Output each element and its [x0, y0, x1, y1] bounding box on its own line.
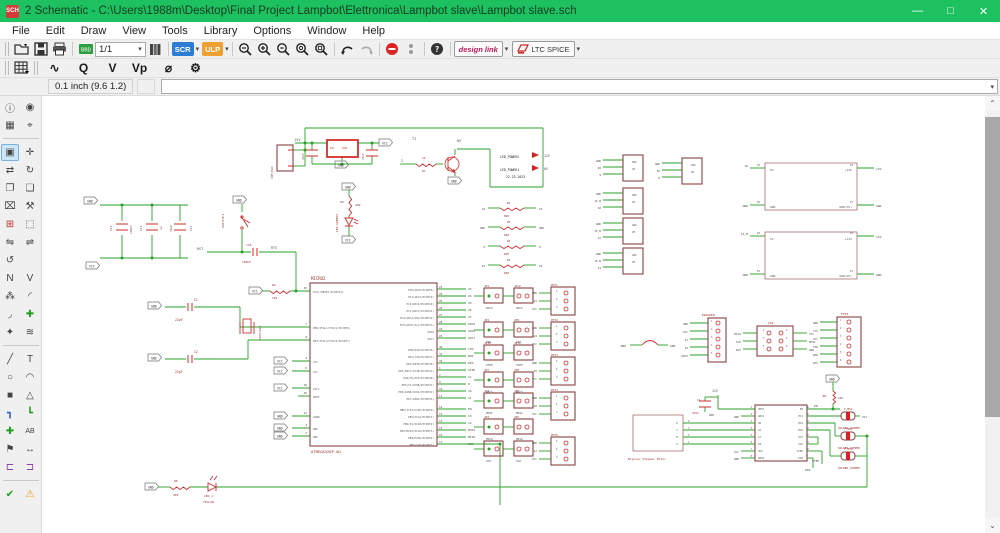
left-tool-palette: ⓘ◉▦⌖▣✛⇄↻❐❏⌧⚒⊞⬚⇋⇌↺NV⁂◜◞✚✦≋╱T○◠■△┓┗✚AB⚑↔⊏⊐… — [0, 96, 42, 533]
svg-text:1A: 1A — [758, 435, 762, 439]
svg-text:GND: GND — [480, 226, 485, 230]
menu-file[interactable]: File — [4, 25, 38, 37]
svg-text:GND: GND — [632, 223, 637, 227]
svg-text:VCC: VCC — [734, 450, 739, 454]
chevron-down-icon[interactable]: ▾ — [505, 45, 509, 53]
svg-text:R2: R2 — [272, 283, 276, 287]
svg-text:VCC: VCC — [89, 264, 95, 268]
board-button[interactable]: BRD — [76, 41, 95, 58]
main-toolbar: BRD 1/1 ▾ SCR ▾ ULP ▾ — [0, 40, 1000, 59]
paste-icon[interactable]: ❏ — [21, 180, 39, 197]
svg-text:6: 6 — [786, 345, 788, 348]
spice-settings-icon[interactable]: ⚙ — [186, 60, 205, 77]
svg-text:SCK: SCK — [486, 459, 491, 463]
svg-text:0V: 0V — [544, 167, 548, 171]
title-bar: SCH 2 Schematic - C:\Users\1988m\Desktop… — [0, 0, 1000, 22]
svg-text:R5: R5 — [340, 200, 344, 204]
svg-text:PB2(SS/OC1B/PCINT2): PB2(SS/OC1B/PCINT2) — [403, 422, 434, 426]
zoom-out-icon[interactable] — [274, 41, 293, 58]
svg-text:12V: 12V — [294, 138, 301, 142]
svg-text:GND: GND — [596, 252, 601, 256]
svg-text:GND1: GND1 — [758, 414, 765, 418]
info-icon[interactable]: ⓘ — [1, 99, 19, 116]
svg-text:MS3: MS3 — [798, 428, 803, 432]
svg-text:VDD: VDD — [758, 449, 763, 453]
ltspice-button[interactable]: LTC SPICE — [512, 41, 574, 57]
svg-text:PB0(ICP1/CLKO/PCINT0): PB0(ICP1/CLKO/PCINT0) — [400, 408, 434, 412]
svg-text:ADC5: ADC5 — [486, 390, 493, 394]
dimension-icon[interactable]: ↔ — [21, 441, 39, 458]
svg-text:8: 8 — [305, 335, 307, 339]
svg-text:20: 20 — [657, 169, 661, 173]
svg-text:TXD: TXD — [468, 347, 474, 351]
svg-text:1B: 1B — [758, 442, 762, 446]
value-icon[interactable]: V — [21, 270, 39, 287]
zoom-redraw-icon[interactable] — [293, 41, 312, 58]
smash-icon[interactable]: ⁂ — [1, 288, 19, 305]
svg-text:PD0(RXD/PCINT16): PD0(RXD/PCINT16) — [408, 348, 434, 352]
svg-text:1: 1 — [711, 320, 713, 323]
svg-text:10: 10 — [439, 387, 443, 391]
label-icon[interactable]: AB — [21, 423, 39, 440]
svg-text:4: 4 — [305, 356, 307, 360]
rect-icon[interactable]: ■ — [1, 387, 19, 404]
svg-text:14: 14 — [598, 266, 602, 270]
svg-text:ADC7: ADC7 — [468, 336, 475, 340]
command-input-wrap: ▾ — [161, 79, 998, 94]
svg-text:RTS: RTS — [271, 246, 277, 250]
save-button[interactable] — [31, 41, 50, 58]
svg-text:PB6(XTAL1/TOSC1/PCINT6): PB6(XTAL1/TOSC1/PCINT6) — [313, 326, 351, 330]
svg-text:VCC: VCC — [532, 342, 537, 346]
toolbar-grip — [5, 42, 9, 56]
svg-text:3: 3 — [556, 376, 558, 379]
chevron-down-icon: ▾ — [138, 45, 142, 53]
svg-text:SCK: SCK — [468, 442, 474, 446]
svg-text:GND: GND — [277, 426, 283, 430]
eye-icon[interactable]: ◉ — [21, 99, 39, 116]
svg-text:1: 1 — [840, 319, 842, 322]
chevron-down-icon[interactable]: ▾ — [990, 83, 994, 91]
svg-text:MISO: MISO — [486, 437, 493, 441]
svg-text:GND: GND — [151, 304, 157, 308]
errors-icon[interactable]: ⚠ — [21, 486, 39, 503]
svg-text:5: 5 — [305, 431, 307, 435]
svg-text:9: 9 — [599, 173, 601, 177]
svg-text:MISO: MISO — [734, 332, 741, 336]
svg-text:4: 4 — [840, 343, 842, 346]
scrollbar-track[interactable] — [985, 111, 1000, 518]
svg-text:GND(0V): GND(0V) — [839, 205, 852, 209]
svg-text:3: 3 — [763, 337, 765, 340]
app-icon: SCH — [6, 5, 19, 18]
svg-text:LED_1: LED_1 — [204, 494, 213, 498]
svg-text:25: 25 — [468, 301, 472, 305]
open-button[interactable] — [12, 41, 31, 58]
svg-text:VCC: VCC — [277, 386, 283, 390]
svg-text:GND: GND — [709, 413, 714, 417]
svg-text:100nF: 100nF — [242, 260, 251, 264]
svg-text:3: 3 — [305, 423, 307, 427]
vertical-scrollbar[interactable]: ⌃ ⌄ — [985, 96, 1000, 533]
svg-text:C34: C34 — [246, 243, 252, 247]
toolbar-grip — [5, 61, 9, 75]
svg-text:4: 4 — [711, 344, 713, 347]
menu-edit[interactable]: Edit — [38, 25, 73, 37]
svg-text:100nF: 100nF — [129, 225, 133, 234]
route-icon[interactable]: ✚ — [21, 306, 39, 323]
bus-icon[interactable]: ┓ — [1, 405, 19, 422]
svg-text:PC1(ADC1/PCINT9): PC1(ADC1/PCINT9) — [408, 295, 434, 299]
port-icon[interactable]: ⊏ — [1, 459, 19, 476]
menu-draw[interactable]: Draw — [73, 25, 115, 37]
svg-text:24: 24 — [468, 294, 472, 298]
svg-text:2: 2 — [556, 368, 558, 371]
svg-text:CTS: CTS — [813, 329, 818, 333]
svg-text:GND: GND — [532, 361, 537, 365]
invoke-icon[interactable]: ✦ — [1, 324, 19, 341]
svg-text:PD2(INT0/PCINT18): PD2(INT0/PCINT18) — [406, 362, 434, 366]
svg-text:VCC: VCC — [313, 360, 318, 364]
svg-text:5: 5 — [840, 351, 842, 354]
svg-text:PB5(SCK/PCINT5): PB5(SCK/PCINT5) — [410, 443, 435, 447]
svg-text:GND: GND — [345, 185, 351, 189]
zoom-select-icon[interactable] — [312, 41, 331, 58]
svg-text:12: 12 — [439, 405, 443, 409]
svg-text:29: 29 — [304, 286, 308, 290]
port-frame-icon[interactable]: ⊐ — [21, 459, 39, 476]
svg-text:VB: VB — [691, 170, 695, 174]
library-button[interactable] — [146, 41, 165, 58]
svg-text:GND: GND — [277, 414, 283, 418]
pinswap-icon[interactable]: ⇋ — [1, 234, 19, 251]
menu-library[interactable]: Library — [196, 25, 246, 37]
svg-text:GND: GND — [743, 273, 749, 277]
svg-text:MICRO2: MICRO2 — [311, 276, 326, 281]
svg-text:JP7: JP7 — [484, 368, 489, 372]
svg-text:30: 30 — [439, 345, 443, 349]
svg-text:12V: 12V — [544, 154, 550, 158]
svg-text:27: 27 — [534, 449, 538, 453]
svg-text:JP9: JP9 — [514, 318, 519, 322]
svg-text:5V: 5V — [770, 237, 774, 241]
redo-button[interactable] — [357, 41, 376, 58]
svg-text:22: 22 — [439, 334, 443, 338]
group-select-icon[interactable]: ▣ — [1, 144, 19, 161]
svg-text:GND: GND — [532, 396, 537, 400]
stop-button[interactable] — [383, 41, 402, 58]
junction-icon[interactable]: ✚ — [1, 423, 19, 440]
run-ulp-button[interactable]: ULP — [202, 42, 223, 56]
svg-text:24: 24 — [534, 334, 538, 338]
svg-text:10: 10 — [482, 207, 486, 211]
svg-text:MISO: MISO — [468, 435, 475, 439]
svg-text:26: 26 — [439, 306, 443, 310]
svg-text:1: 1 — [556, 325, 558, 328]
svg-text:3: 3 — [556, 456, 558, 459]
simulate-icon[interactable]: ∿ — [45, 60, 64, 77]
run-script-button[interactable]: SCR — [172, 42, 194, 56]
run-status-icon — [402, 41, 421, 58]
svg-text:2A: 2A — [758, 428, 762, 432]
svg-text:OUT: OUT — [342, 146, 348, 150]
voltage-phase-probe-icon[interactable]: Vp — [130, 60, 149, 77]
current-probe-icon[interactable]: ⌀ — [159, 60, 178, 77]
svg-text:POT5: POT5 — [551, 433, 558, 437]
svg-text:1: 1 — [556, 395, 558, 398]
svg-text:2: 2 — [711, 328, 713, 331]
undo-button[interactable] — [338, 41, 357, 58]
svg-text:GND: GND — [734, 457, 739, 461]
svg-text:VCC: VCC — [345, 238, 351, 242]
svg-text:VMOT: VMOT — [758, 407, 765, 411]
svg-text:1: 1 — [439, 366, 441, 370]
gateswap-icon[interactable]: ↺ — [1, 252, 19, 269]
svg-text:GND2: GND2 — [758, 456, 765, 460]
svg-text:18: 18 — [304, 383, 308, 387]
svg-text:PB7(XTAL2/TOSC2/PCINT7): PB7(XTAL2/TOSC2/PCINT7) — [313, 339, 351, 343]
wire-icon[interactable]: ╱ — [1, 351, 19, 368]
svg-text:13: 13 — [439, 412, 443, 416]
attribute-icon[interactable]: ⚑ — [1, 441, 19, 458]
chevron-down-icon[interactable]: ▾ — [577, 45, 581, 53]
change-icon[interactable]: ⚒ — [21, 198, 39, 215]
svg-text:1: 1 — [556, 290, 558, 293]
svg-text:GND: GND — [691, 163, 696, 167]
copy-icon[interactable]: ❐ — [1, 180, 19, 197]
text-icon[interactable]: T — [21, 351, 39, 368]
svg-text:VB: VB — [632, 200, 636, 204]
add-part-icon[interactable]: ⊞ — [1, 216, 19, 233]
svg-text:COM_PAC: COM_PAC — [270, 166, 274, 179]
svg-text:27: 27 — [439, 313, 443, 317]
svg-text:C: C — [676, 428, 678, 432]
svg-text:DIR: DIR — [468, 361, 474, 365]
svg-text:GND: GND — [596, 222, 601, 226]
svg-text:VCC: VCC — [252, 289, 258, 293]
svg-text:R1: R1 — [507, 258, 511, 262]
chevron-down-icon[interactable]: ▾ — [225, 45, 229, 53]
svg-text:9: 9 — [468, 382, 470, 386]
sim-toolbar: ∿ Q V Vp ⌀ ⚙ — [0, 59, 1000, 78]
svg-text:Y_MS2: Y_MS2 — [844, 427, 853, 431]
miter-icon[interactable]: ◜ — [21, 288, 39, 305]
svg-text:1: 1 — [556, 440, 558, 443]
arc-icon[interactable]: ◠ — [21, 369, 39, 386]
svg-text:GND: GND — [632, 193, 637, 197]
name-icon[interactable]: N — [1, 270, 19, 287]
rotate-icon[interactable]: ↻ — [21, 162, 39, 179]
svg-text:C11: C11 — [189, 225, 193, 231]
svg-text:0V: 0V — [457, 139, 462, 143]
maximize-button[interactable]: □ — [934, 0, 967, 22]
svg-text:7: 7 — [305, 322, 307, 326]
optimize-icon[interactable]: ≋ — [21, 324, 39, 341]
zoom-fit-icon[interactable] — [236, 41, 255, 58]
svg-text:PD7(AIN1/PCINT23): PD7(AIN1/PCINT23) — [406, 397, 434, 401]
grid-button[interactable] — [12, 60, 31, 77]
svg-text:GND: GND — [770, 205, 776, 209]
polygon-icon[interactable]: △ — [21, 387, 39, 404]
svg-text:PC2(ADC2/PCINT10): PC2(ADC2/PCINT10) — [406, 302, 434, 306]
svg-text:12V: 12V — [712, 389, 718, 393]
svg-text:SLP: SLP — [798, 442, 803, 446]
svg-text:12V: 12V — [876, 235, 882, 239]
svg-text:VB: VB — [632, 230, 636, 234]
svg-text:MOSI: MOSI — [468, 428, 475, 432]
zoom-in-icon[interactable] — [255, 41, 274, 58]
svg-text:VCC: VCC — [277, 369, 283, 373]
design-link-button[interactable]: design link — [454, 41, 503, 57]
svg-text:RXD: RXD — [813, 353, 818, 357]
delete-icon[interactable]: ⌧ — [1, 198, 19, 215]
svg-text:VCC: VCC — [532, 307, 537, 311]
svg-text:C4: C4 — [697, 398, 701, 402]
svg-text:B: B — [676, 435, 678, 439]
scrollbar-thumb[interactable] — [985, 117, 1000, 417]
svg-text:ADC5: ADC5 — [468, 322, 475, 326]
svg-text:10: 10 — [468, 389, 472, 393]
mark-icon[interactable]: ⌖ — [21, 117, 39, 134]
menu-view[interactable]: View — [114, 25, 154, 37]
svg-text:POT4: POT4 — [551, 388, 558, 392]
svg-text:PB1(OC1A/PCINT1): PB1(OC1A/PCINT1) — [408, 415, 434, 419]
svg-text:AVCC: AVCC — [313, 387, 320, 391]
svg-text:6: 6 — [305, 366, 307, 370]
close-button[interactable]: ✕ — [967, 0, 1000, 22]
svg-text:SOLDER_JUMPER: SOLDER_JUMPER — [838, 466, 860, 470]
svg-text:C13: C13 — [109, 225, 113, 231]
svg-text:31: 31 — [439, 352, 443, 356]
scroll-down-icon[interactable]: ⌄ — [985, 518, 1000, 533]
svg-text:2: 2 — [556, 403, 558, 406]
svg-text:5V: 5V — [770, 168, 774, 172]
print-button[interactable] — [50, 41, 69, 58]
svg-text:POT2: POT2 — [551, 318, 558, 322]
mirror-icon[interactable]: ⇄ — [1, 162, 19, 179]
probe-zoom-icon[interactable]: Q — [74, 60, 93, 77]
svg-text:GND: GND — [655, 162, 660, 166]
svg-text:Bipolar Stepper Motor: Bipolar Stepper Motor — [628, 457, 666, 461]
svg-text:PB3(MOSI/OC2A/PCINT3): PB3(MOSI/OC2A/PCINT3) — [400, 429, 434, 433]
svg-text:9: 9 — [658, 176, 660, 180]
svg-text:LED_POWER2: LED_POWER2 — [500, 155, 519, 159]
svg-text:PC4(ADC4/SDA/PCINT12): PC4(ADC4/SDA/PCINT12) — [400, 316, 434, 320]
svg-text:GND: GND — [236, 198, 242, 202]
svg-text:P2: P2 — [850, 164, 853, 167]
group-icon[interactable]: ⬚ — [21, 216, 39, 233]
svg-text:LED_POWER1: LED_POWER1 — [500, 168, 519, 172]
svg-text:2: 2 — [840, 327, 842, 330]
svg-text:GND: GND — [876, 273, 882, 277]
svg-text:2: 2 — [556, 298, 558, 301]
svg-text:STEP: STEP — [486, 363, 493, 367]
split-icon[interactable]: ◞ — [1, 306, 19, 323]
svg-text:R3: R3 — [507, 220, 511, 224]
svg-text:14: 14 — [468, 421, 472, 425]
menu-window[interactable]: Window — [299, 25, 354, 37]
svg-text:4: 4 — [786, 337, 788, 340]
svg-text:P4: P4 — [757, 164, 760, 167]
svg-text:5: 5 — [711, 352, 713, 355]
svg-text:STEP: STEP — [812, 459, 819, 463]
help-button[interactable]: ? — [428, 41, 447, 58]
canvas-area[interactable]: 12VINOUTT11kR720VLED_POWER212VLED_POWER1… — [42, 96, 985, 533]
net-icon[interactable]: ┗ — [21, 405, 39, 422]
move-icon[interactable]: ✛ — [21, 144, 39, 161]
erc-icon[interactable]: ✔ — [1, 486, 19, 503]
menu-options[interactable]: Options — [245, 25, 299, 37]
svg-text:000: 000 — [504, 252, 509, 256]
svg-text:JP4: JP4 — [484, 415, 489, 419]
menu-help[interactable]: Help — [354, 25, 393, 37]
svg-text:VCC: VCC — [683, 330, 688, 334]
svg-text:PC6(/RESET/PCINT14): PC6(/RESET/PCINT14) — [313, 290, 344, 294]
coordinate-spacer — [137, 79, 155, 94]
chevron-down-icon[interactable]: ▾ — [196, 45, 200, 53]
display-layers-icon[interactable]: ▦ — [1, 117, 19, 134]
svg-text:GND: GND — [770, 274, 776, 278]
svg-text:20: 20 — [598, 166, 602, 170]
menu-tools[interactable]: Tools — [154, 25, 196, 37]
svg-text:PD6(AIN0/OC0A/PCINT22): PD6(AIN0/OC0A/PCINT22) — [398, 390, 434, 394]
voltage-probe-icon[interactable]: V — [103, 60, 122, 77]
svg-text:Y_MS3: Y_MS3 — [844, 447, 853, 451]
svg-text:FTDI: FTDI — [841, 312, 848, 316]
svg-text:10uF: 10uF — [169, 225, 173, 232]
minimize-button[interactable]: — — [901, 0, 934, 22]
svg-text:23: 23 — [534, 299, 538, 303]
svg-text:22pF: 22pF — [175, 318, 183, 322]
svg-text:VCC: VCC — [313, 370, 318, 374]
svg-text:C2: C2 — [194, 350, 198, 354]
svg-text:6: 6 — [840, 359, 842, 362]
scroll-up-icon[interactable]: ⌃ — [985, 96, 1000, 111]
coordinate-display: 0.1 inch (9.6 1.2) — [48, 79, 133, 94]
svg-text:GND: GND — [596, 159, 601, 163]
svg-text:DIR: DIR — [805, 468, 811, 472]
svg-text:+12V: +12V — [845, 237, 852, 241]
svg-text:ADC5: ADC5 — [681, 354, 688, 358]
menu-bar: File Edit Draw View Tools Library Option… — [0, 22, 1000, 40]
svg-text:GND: GND — [621, 344, 627, 348]
svg-text:VCC: VCC — [532, 377, 537, 381]
svg-text:GND: GND — [743, 204, 749, 208]
sheet-selector[interactable]: 1/1 ▾ — [95, 42, 146, 57]
replace-icon[interactable]: ⇌ — [21, 234, 39, 251]
svg-text:MOSI: MOSI — [486, 411, 493, 415]
svg-text:LED_GREEN1: LED_GREEN1 — [335, 214, 339, 232]
circle-icon[interactable]: ○ — [1, 369, 19, 386]
svg-text:22pF: 22pF — [175, 370, 183, 374]
svg-text:12: 12 — [598, 236, 602, 240]
svg-text:STEP: STEP — [516, 363, 523, 367]
command-input[interactable] — [162, 81, 988, 93]
schematic-canvas[interactable]: 12VINOUTT11kR720VLED_POWER212VLED_POWER1… — [42, 96, 984, 533]
svg-text:ATMEGA328P-AU: ATMEGA328P-AU — [311, 449, 341, 454]
svg-text:PD3(INT1/OC2B/PCINT19): PD3(INT1/OC2B/PCINT19) — [398, 369, 434, 373]
svg-text:1: 1 — [556, 360, 558, 363]
svg-text:2: 2 — [401, 159, 403, 163]
svg-text:JP1: JP1 — [484, 284, 489, 288]
svg-text:28: 28 — [439, 320, 443, 324]
svg-text:9: 9 — [439, 380, 441, 384]
svg-text:GND: GND — [876, 204, 882, 208]
svg-text:47uF: 47uF — [301, 153, 305, 160]
svg-text:25: 25 — [439, 299, 443, 303]
svg-text:SWITCH=1: SWITCH=1 — [221, 213, 225, 228]
svg-text:R6: R6 — [174, 479, 178, 483]
